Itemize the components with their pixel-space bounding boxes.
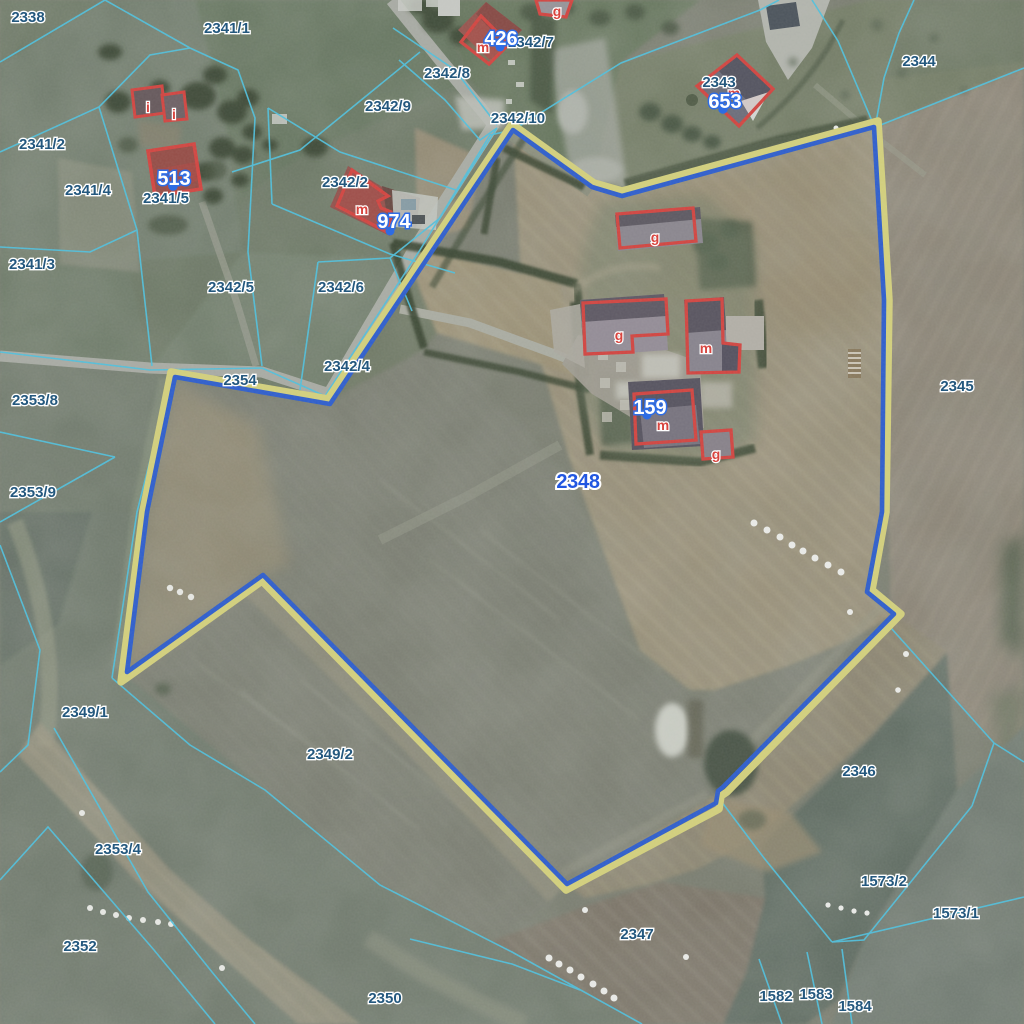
svg-text:2353/8: 2353/8 — [12, 392, 58, 409]
svg-text:2342/6: 2342/6 — [318, 279, 364, 296]
svg-text:2342/5: 2342/5 — [208, 279, 254, 296]
svg-text:513: 513 — [157, 168, 190, 190]
svg-text:2352: 2352 — [63, 938, 96, 955]
svg-text:2345: 2345 — [940, 378, 973, 395]
svg-text:2342/10: 2342/10 — [491, 110, 545, 127]
svg-text:g: g — [651, 229, 660, 245]
svg-text:2341/4: 2341/4 — [65, 182, 112, 199]
svg-text:1582: 1582 — [759, 988, 792, 1005]
svg-text:2344: 2344 — [902, 53, 936, 70]
svg-text:2342/8: 2342/8 — [424, 65, 470, 82]
svg-text:2354: 2354 — [223, 372, 257, 389]
svg-text:974: 974 — [377, 211, 411, 233]
svg-text:2348: 2348 — [556, 471, 599, 493]
svg-text:2341/3: 2341/3 — [9, 256, 55, 273]
svg-text:m: m — [700, 340, 712, 356]
svg-text:i: i — [172, 106, 176, 122]
svg-text:2341/1: 2341/1 — [204, 20, 250, 37]
svg-text:2341/5: 2341/5 — [143, 190, 189, 207]
svg-text:2342/2: 2342/2 — [322, 174, 368, 191]
svg-text:2338: 2338 — [11, 9, 44, 26]
svg-text:2353/4: 2353/4 — [95, 841, 142, 858]
svg-text:2341/2: 2341/2 — [19, 136, 65, 153]
svg-text:2346: 2346 — [842, 763, 875, 780]
svg-text:m: m — [356, 201, 368, 217]
svg-text:1583: 1583 — [799, 986, 832, 1003]
svg-text:426: 426 — [484, 28, 517, 50]
svg-text:2353/9: 2353/9 — [10, 484, 56, 501]
svg-text:653: 653 — [708, 91, 741, 113]
svg-text:159: 159 — [633, 397, 666, 419]
svg-text:g: g — [553, 3, 562, 19]
svg-text:2342/4: 2342/4 — [324, 358, 371, 375]
svg-text:1584: 1584 — [838, 998, 872, 1015]
svg-text:i: i — [146, 99, 150, 115]
svg-text:2342/9: 2342/9 — [365, 98, 411, 115]
svg-text:1573/1: 1573/1 — [933, 905, 979, 922]
svg-text:2349/2: 2349/2 — [307, 746, 353, 763]
svg-text:m: m — [657, 417, 669, 433]
svg-text:2347: 2347 — [620, 926, 653, 943]
svg-text:2350: 2350 — [368, 990, 401, 1007]
svg-text:2349/1: 2349/1 — [62, 704, 108, 721]
svg-text:g: g — [712, 446, 721, 462]
svg-text:g: g — [615, 327, 624, 343]
svg-text:1573/2: 1573/2 — [861, 873, 907, 890]
